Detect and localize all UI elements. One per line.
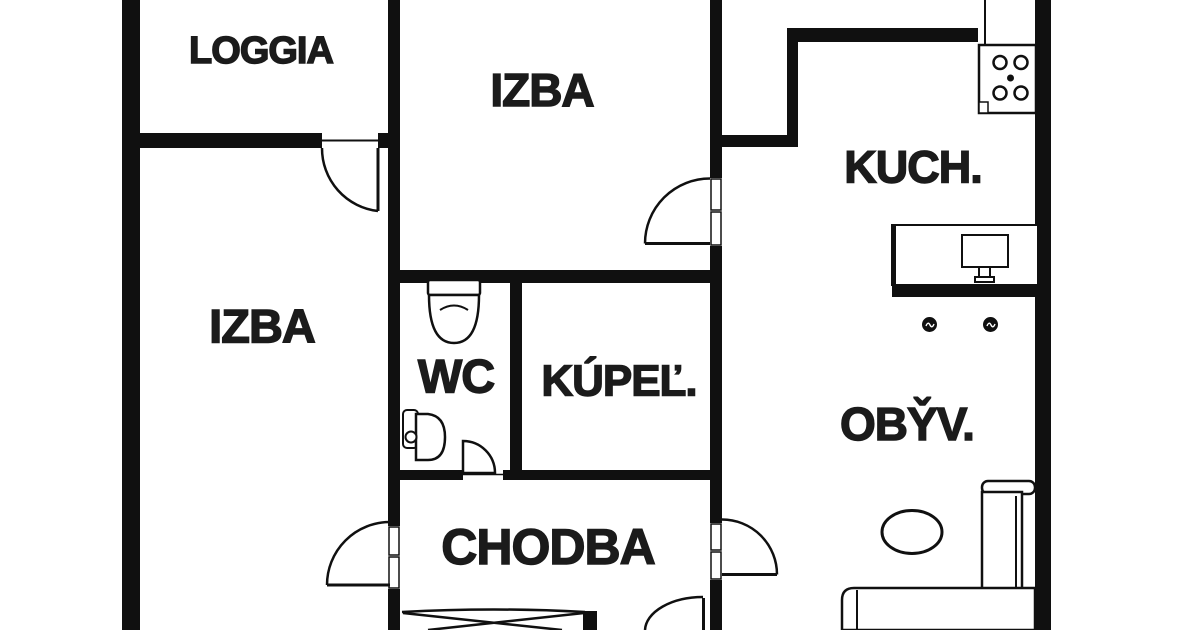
ceiling-light-icon: [983, 317, 998, 332]
door-jamb: [711, 179, 721, 210]
loggia-bottom-wall-stub: [378, 133, 400, 148]
burner: [1015, 56, 1028, 69]
door-jamb: [711, 524, 721, 550]
room-label-kupel: KÚPEĽ.: [541, 356, 696, 406]
wall-east-vertical-bottom: [710, 580, 722, 630]
room-label-izba-left: IZBA: [209, 300, 315, 353]
burner: [994, 56, 1007, 69]
wall-east-vertical-top: [710, 0, 722, 178]
kitchen-obyv-wall: [892, 285, 1051, 297]
connector-wall: [710, 135, 798, 147]
wall-middle-vertical-upper: [388, 0, 400, 526]
monitor-stand: [979, 267, 990, 277]
door-jamb: [389, 527, 399, 555]
burner: [994, 87, 1007, 100]
door-jamb: [711, 552, 721, 579]
kitchen-west-wall: [787, 28, 798, 147]
room-label-chodba: CHODBA: [441, 519, 654, 575]
chodba-top-wall-east: [503, 470, 722, 480]
outer-wall-left: [122, 0, 140, 630]
toilet-tank: [428, 280, 480, 295]
wall-east-vertical-mid: [710, 246, 722, 523]
room-label-obyv: OBY̌V.: [840, 397, 974, 450]
loggia-bottom-wall: [140, 133, 322, 148]
stove-notch: [979, 102, 988, 113]
door-jamb: [389, 557, 399, 588]
bed-corner-post: [583, 611, 597, 630]
sink-drain: [406, 432, 417, 443]
burner: [1015, 87, 1028, 100]
room-label-kuch: KUCH.: [844, 142, 982, 193]
kitchen-top-wall: [787, 28, 978, 42]
door-jamb: [711, 212, 721, 245]
outer-wall-right: [1035, 0, 1051, 630]
chodba-top-wall-west: [388, 470, 463, 480]
stove-knob: [1007, 75, 1014, 82]
room-label-loggia: LOGGIA: [189, 30, 333, 72]
coffee-table-icon: [882, 511, 942, 554]
monitor-base: [975, 277, 994, 282]
sink-basin: [416, 414, 445, 460]
ceiling-light-icon: [922, 317, 937, 332]
room-label-izba-top: IZBA: [490, 64, 593, 116]
toilet-icon: [428, 280, 480, 343]
wall-middle-vertical-lower: [388, 589, 400, 630]
wc-kupel-divider-wall: [510, 280, 522, 470]
room-label-wc: WC: [418, 350, 494, 403]
floor-plan: LOGGIA IZBA IZBA KUCH. WC KÚPEĽ. OBY̌V. …: [0, 0, 1200, 630]
sofa-seat-bottom: [842, 588, 1035, 630]
monitor-screen: [962, 235, 1008, 267]
desk-monitor-icon: [892, 225, 1038, 285]
